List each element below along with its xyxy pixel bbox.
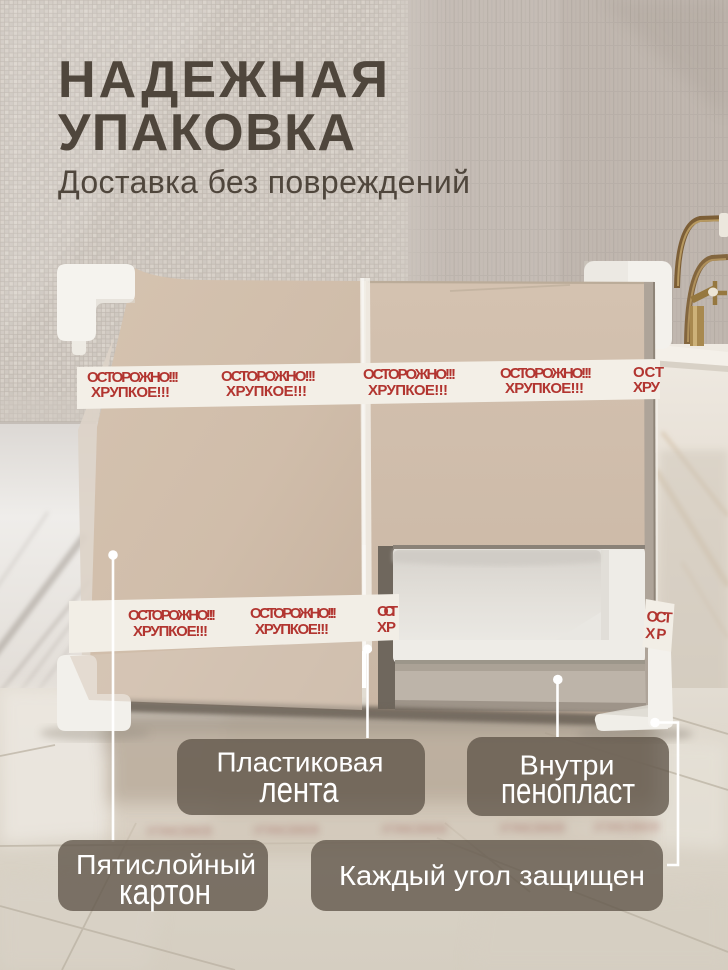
svg-text:ОСТОРОЖНО!!!: ОСТОРОЖНО!!! [250,605,337,622]
svg-text:ОСТ: ОСТ [646,608,673,627]
svg-text:УПАКОВКЕ!!!: УПАКОВКЕ!!! [498,820,566,837]
svg-text:ОСТОРОЖНО!!!: ОСТОРОЖНО!!! [363,366,456,383]
svg-text:ОСТ: ОСТ [377,603,398,620]
svg-text:ХРУПКОЕ!!!: ХРУПКОЕ!!! [368,382,448,399]
svg-text:УПАКОВКЕ!!!: УПАКОВКЕ!!! [145,823,213,840]
svg-text:пенопласт: пенопласт [501,770,635,811]
svg-text:Доставка без повреждений: Доставка без повреждений [58,164,470,200]
svg-text:ХРУПКОЕ!!!: ХРУПКОЕ!!! [255,621,329,638]
svg-text:ХРУПКОЕ!!!: ХРУПКОЕ!!! [133,623,208,640]
svg-text:лента: лента [260,769,340,810]
svg-text:ХР: ХР [645,625,667,643]
svg-text:ХРУ: ХРУ [633,379,661,396]
svg-text:Каждый угол защищен: Каждый угол защищен [339,860,645,891]
svg-text:НАДЕЖНАЯ: НАДЕЖНАЯ [58,51,388,109]
svg-text:ХР: ХР [377,619,396,636]
svg-text:ХРУПКОЕ!!!: ХРУПКОЕ!!! [505,380,584,397]
svg-text:УПАКОВКЕ!!!: УПАКОВКЕ!!! [380,821,448,838]
svg-text:УПАКОВКА: УПАКОВКА [58,104,355,162]
svg-text:УПАКОВКЕ!!!: УПАКОВКЕ!!! [252,822,320,839]
svg-text:ХРУПКОЕ!!!: ХРУПКОЕ!!! [226,383,307,400]
svg-text:картон: картон [119,871,211,912]
svg-text:УПАКОВКЕ!!!: УПАКОВКЕ!!! [592,819,660,836]
svg-text:ХРУПКОЕ!!!: ХРУПКОЕ!!! [91,384,170,401]
svg-text:ОСТОРОЖНО!!!: ОСТОРОЖНО!!! [128,607,216,624]
